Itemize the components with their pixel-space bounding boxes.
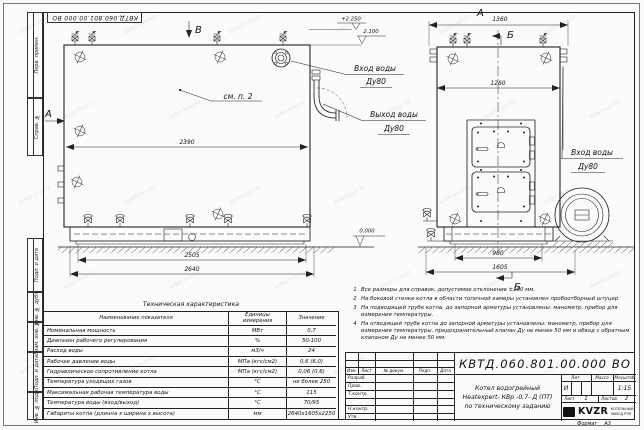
tech-row-value: 70/95 bbox=[287, 398, 336, 408]
dim-side-width: 1260 bbox=[490, 80, 505, 87]
section-label-top: Б bbox=[507, 30, 514, 41]
kvzr-logo-mark bbox=[563, 407, 575, 417]
inlet-side-line1: Вход воды bbox=[571, 148, 613, 157]
tech-row-name: Гидравлическое сопротивление котла bbox=[44, 367, 229, 377]
kvzr-logo-sub2: ЗАВОД РЭП bbox=[611, 412, 634, 416]
sheet-label: Лист bbox=[562, 395, 577, 402]
tech-row-units: % bbox=[229, 336, 287, 346]
side-view bbox=[423, 30, 613, 250]
side-view-title: А bbox=[476, 8, 484, 19]
doc-name-line2: Heatexpert- КВр -0,7- Д (ПТ) bbox=[463, 393, 553, 402]
tech-row-value: 115 bbox=[287, 388, 336, 398]
notes-list: 1Все размеры для справок, допустимое отк… bbox=[349, 287, 632, 344]
inlet-side-line2: Ду80 bbox=[577, 162, 598, 171]
tech-col-header-name: Наименование показателя bbox=[44, 312, 229, 326]
sheets-label: Листов bbox=[599, 395, 619, 402]
role-razrab: Разраб. bbox=[346, 374, 375, 382]
note-item: 2На боковой стенке котла в области топоч… bbox=[349, 296, 632, 303]
kvzr-logo-text: KVZR bbox=[578, 406, 608, 417]
tech-row-units: МПа (кгс/см2) bbox=[229, 357, 287, 367]
tech-row-name: Рабочее давление воды bbox=[44, 357, 229, 367]
tech-row-name: Температура уходящих газов bbox=[44, 378, 229, 388]
format-value: А3 bbox=[604, 421, 611, 427]
doc-name-line3: по техническому заданию bbox=[464, 402, 550, 411]
elevation-ground: 0.000 bbox=[359, 229, 375, 235]
dim-side-base: 980 bbox=[492, 250, 504, 257]
rev-header-date: Дата bbox=[437, 367, 454, 374]
note-text: На отводящей трубе котла до запорной арм… bbox=[361, 321, 632, 343]
see-note-label: см. п. 2 bbox=[224, 92, 253, 101]
rev-header-sign: Подп. bbox=[413, 367, 437, 374]
title-block: Изм. Лист № докум. Подп. Дата Разраб. Пр… bbox=[345, 352, 635, 420]
view-arrow-left-label: А bbox=[44, 109, 52, 120]
tech-row-value: не более 250 bbox=[287, 378, 336, 388]
note-text: На боковой стенке котла в области топочн… bbox=[361, 296, 618, 303]
tech-row-name: Температура воды (вход/выход) bbox=[44, 398, 229, 408]
note-text: Все размеры для справок, допустимое откл… bbox=[361, 287, 535, 294]
tech-row-name: Габариты котла (длинна х ширина х высота… bbox=[44, 409, 229, 419]
rev-header-list: Лист bbox=[358, 367, 375, 374]
kvzr-logo-subtext: КОТЕЛЬНЫЙ ЗАВОД РЭП bbox=[611, 407, 634, 415]
tech-row-units: м3/ч bbox=[229, 347, 287, 357]
format-label: Формат bbox=[577, 421, 597, 427]
outlet-front-line1: Выход воды bbox=[370, 110, 418, 119]
note-item: 4На отводящей трубе котла до запорной ар… bbox=[349, 321, 632, 343]
drawing-sheet: kotel-kvzr.kzkotel-kvzr.kzkotel-kvzr.kzk… bbox=[0, 0, 644, 430]
ground-line bbox=[58, 247, 634, 253]
tech-row-name: Расход воды bbox=[44, 347, 229, 357]
view-arrow-top-label: В bbox=[195, 25, 202, 36]
rev-header-doc: № докум. bbox=[375, 367, 413, 374]
lit-value: И bbox=[561, 381, 571, 395]
format-note: Формат А3 bbox=[553, 421, 635, 427]
sheets-value: 2 bbox=[619, 395, 634, 402]
dim-side-flanges: 1360 bbox=[492, 16, 507, 23]
elevation-top: +2.250 bbox=[341, 17, 361, 23]
tech-table: Наименование показателя Единицы измерени… bbox=[43, 311, 339, 420]
tech-row-value: 2640х1605х2250 bbox=[287, 409, 336, 419]
dim-side-total: 1605 bbox=[492, 264, 507, 271]
doc-number: КВТД.060.801.00.000 ВО bbox=[454, 353, 636, 374]
tech-row-value: 50-100 bbox=[287, 336, 336, 346]
dim-front-base: 2505 bbox=[184, 252, 199, 259]
note-number: 3 bbox=[349, 305, 361, 320]
role-blank bbox=[346, 398, 375, 405]
rev-header-izm: Изм. bbox=[346, 367, 358, 374]
doc-name: Котел водогрейный Heatexpert- КВр -0,7- … bbox=[454, 374, 561, 421]
note-item: 1Все размеры для справок, допустимое отк… bbox=[349, 287, 632, 294]
tech-row-name: Максимальная рабочая температура воды bbox=[44, 388, 229, 398]
tech-row-value: 0,6 (6,0) bbox=[287, 357, 336, 367]
tech-row-units: мм bbox=[229, 409, 287, 419]
tech-row-value: 0,7 bbox=[287, 326, 336, 336]
inlet-front-line1: Вход воды bbox=[354, 64, 396, 73]
scale-value: 1:15 bbox=[613, 381, 636, 395]
dim-front-width: 2390 bbox=[179, 139, 194, 146]
role-utv: Утв. bbox=[346, 413, 375, 421]
elevation-marks: +2.250 2.100 0.000 bbox=[309, 17, 386, 246]
tech-row-units: МВт bbox=[229, 326, 287, 336]
outlet-front-line2: Ду80 bbox=[383, 124, 404, 133]
tech-row-units: МПа (кгс/см2) bbox=[229, 367, 287, 377]
tech-row-units: °С bbox=[229, 388, 287, 398]
elevation-mid: 2.100 bbox=[363, 29, 379, 35]
note-number: 1 bbox=[349, 287, 361, 294]
note-text: На подводящей трубе котла, до запорной а… bbox=[361, 305, 632, 320]
sheet-value: 1 bbox=[577, 395, 595, 402]
tech-row-units: °С bbox=[229, 398, 287, 408]
tech-row-units: °С bbox=[229, 378, 287, 388]
note-number: 4 bbox=[349, 321, 361, 343]
note-item: 3На подводящей трубе котла, до запорной … bbox=[349, 305, 632, 320]
front-view bbox=[58, 31, 347, 244]
role-prov: Пров. bbox=[346, 382, 375, 390]
tech-table-title: Техническая характеристика bbox=[43, 301, 339, 308]
scale-header: Масштаб bbox=[613, 374, 636, 381]
tech-row-value: 24 bbox=[287, 347, 336, 357]
dimension-lines: 2390 2505 2640 1360 1260 980 1605 bbox=[66, 16, 575, 277]
tech-row-name: Диапазон рабочего регулирования bbox=[44, 336, 229, 346]
tech-col-header-value: Значение bbox=[287, 312, 336, 326]
note-number: 2 bbox=[349, 296, 361, 303]
dim-front-total: 2640 bbox=[184, 266, 199, 273]
doc-name-line1: Котел водогрейный bbox=[475, 384, 540, 393]
mass-header: Масса bbox=[591, 374, 613, 381]
tech-row-name: Номинальная мощность bbox=[44, 326, 229, 336]
tech-row-value: 0,06 (0,6) bbox=[287, 367, 336, 377]
tech-col-header-units: Единицы измерения bbox=[229, 312, 287, 326]
role-tkontr: Т.контр. bbox=[346, 390, 375, 398]
kvzr-logo-sub1: КОТЕЛЬНЫЙ bbox=[611, 407, 634, 411]
role-nkontr: Н.контр. bbox=[346, 405, 375, 413]
kvzr-logo: KVZR КОТЕЛЬНЫЙ ЗАВОД РЭП bbox=[561, 402, 636, 421]
inlet-front-line2: Ду80 bbox=[365, 77, 386, 86]
lit-header: Лит. bbox=[561, 374, 591, 381]
